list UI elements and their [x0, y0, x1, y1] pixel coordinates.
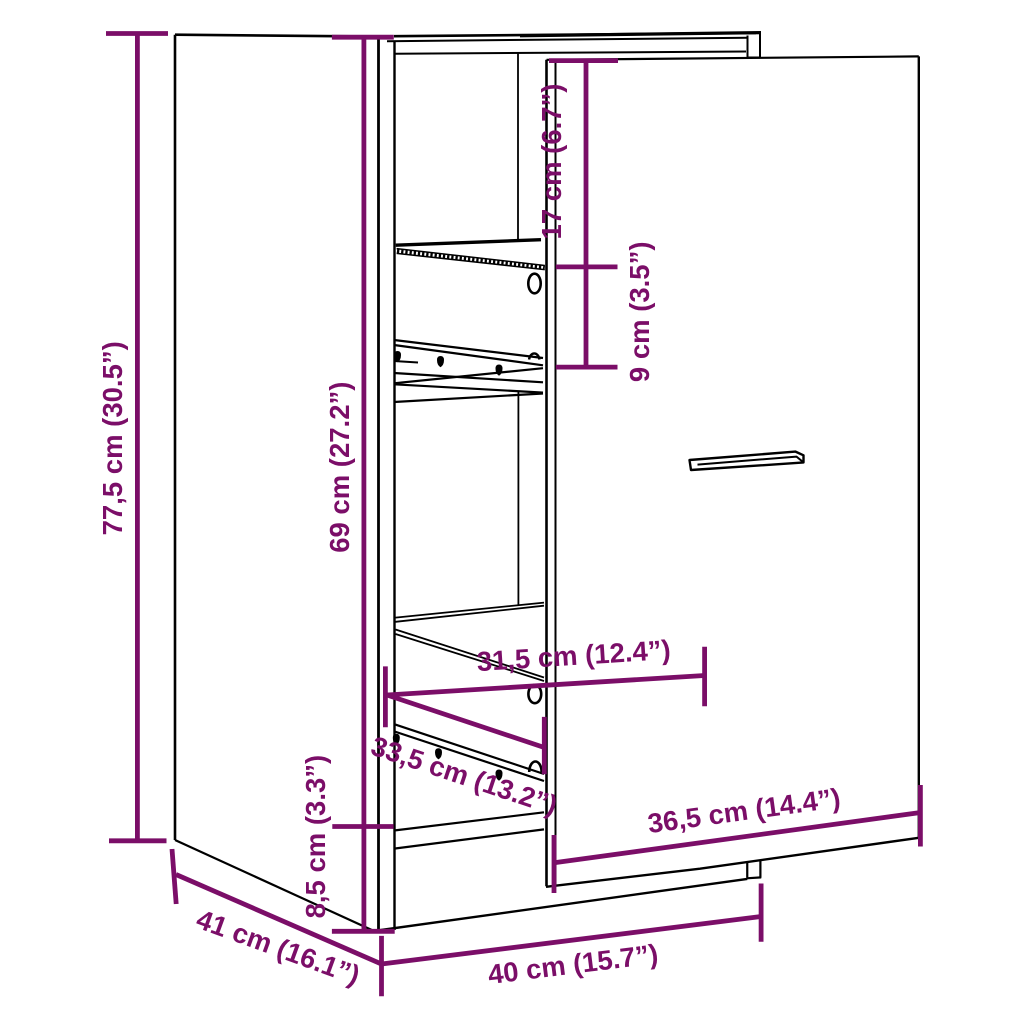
- svg-text:69 cm (27.2”): 69 cm (27.2”): [324, 382, 355, 553]
- svg-text:8,5 cm (3.3”): 8,5 cm (3.3”): [300, 755, 331, 919]
- svg-text:9 cm (3.5”): 9 cm (3.5”): [624, 241, 655, 382]
- svg-text:17 cm (6.7”): 17 cm (6.7”): [536, 84, 567, 240]
- svg-text:77,5 cm (30.5”): 77,5 cm (30.5”): [97, 341, 128, 535]
